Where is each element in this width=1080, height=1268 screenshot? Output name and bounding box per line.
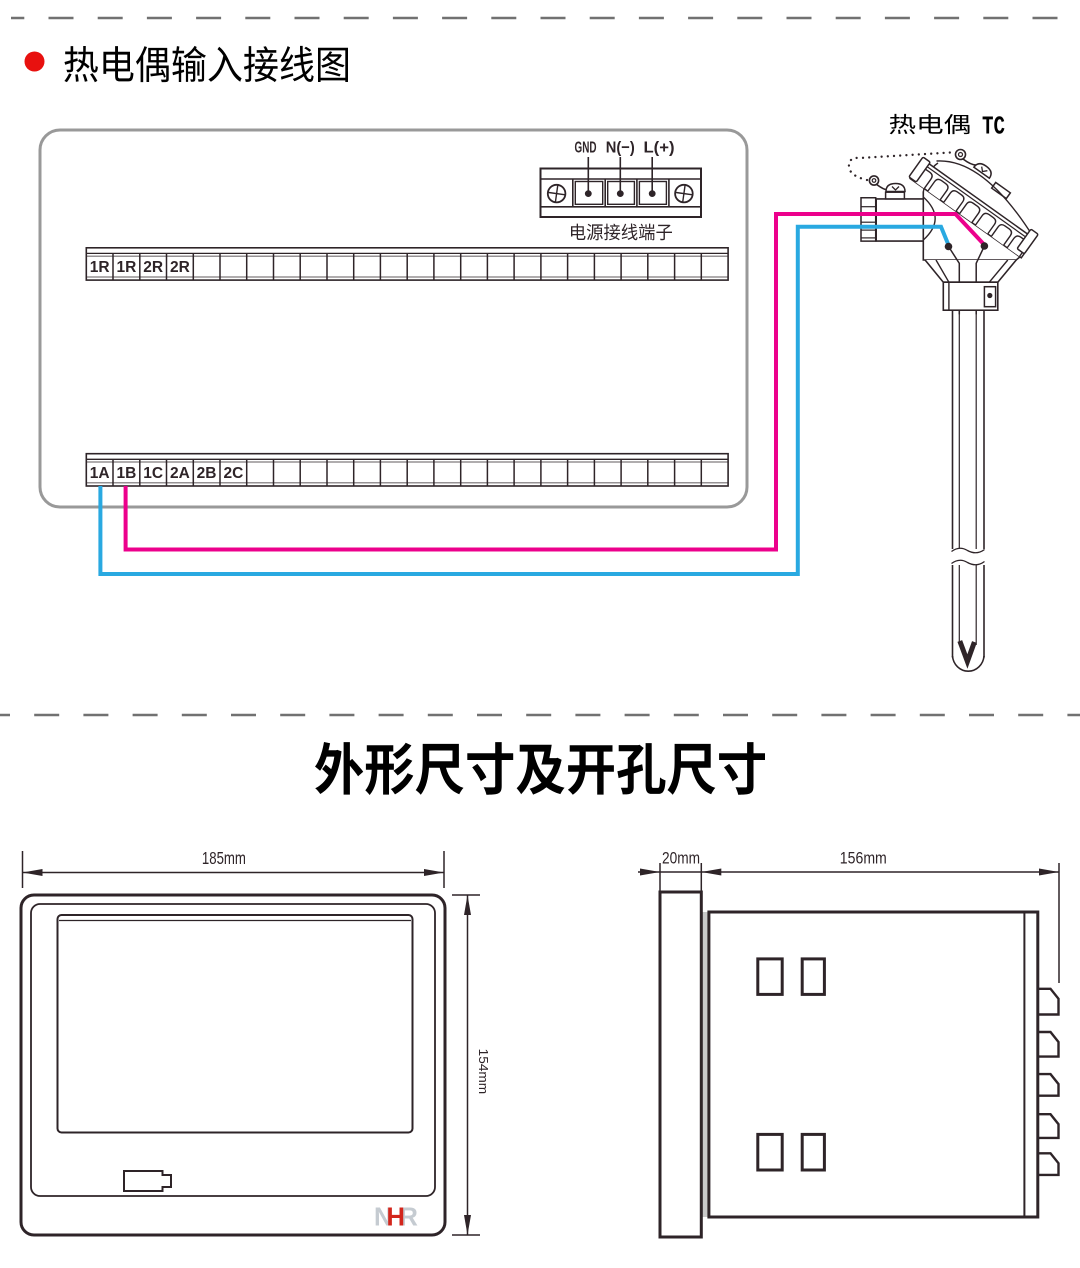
svg-text:1R: 1R <box>116 259 136 276</box>
svg-text:L(+): L(+) <box>644 140 675 157</box>
svg-text:2B: 2B <box>197 465 217 482</box>
svg-text:2C: 2C <box>223 465 243 482</box>
svg-text:2R: 2R <box>170 259 190 276</box>
svg-text:2A: 2A <box>170 465 190 482</box>
svg-text:1C: 1C <box>143 465 163 482</box>
svg-text:154mm: 154mm <box>476 1049 491 1095</box>
svg-text:N(−): N(−) <box>606 140 635 157</box>
svg-text:1R: 1R <box>90 259 110 276</box>
svg-text:GND: GND <box>575 140 597 157</box>
svg-text:1B: 1B <box>116 465 136 482</box>
svg-text:1A: 1A <box>90 465 110 482</box>
svg-text:2R: 2R <box>143 259 163 276</box>
svg-text:185mm: 185mm <box>202 848 246 868</box>
svg-text:20mm: 20mm <box>662 848 700 867</box>
svg-text:TC: TC <box>982 112 1005 142</box>
svg-text:156mm: 156mm <box>840 848 887 867</box>
svg-text:H: H <box>387 1204 405 1232</box>
